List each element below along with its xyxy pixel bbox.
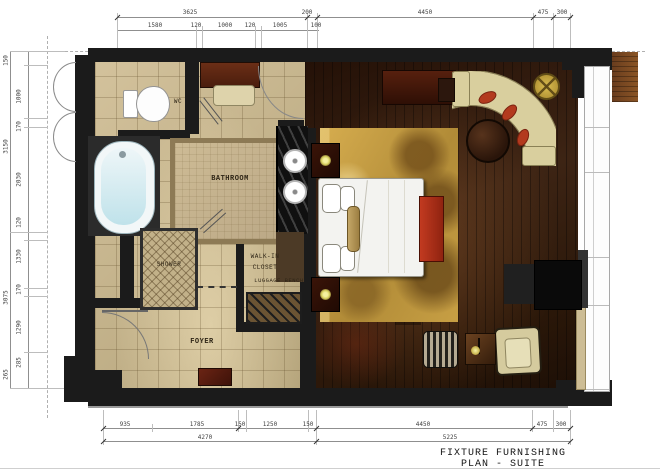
- tick: [24, 118, 48, 119]
- window-mullion-vertical: [593, 67, 594, 391]
- vanity-sink-bottom: [283, 180, 307, 204]
- dim-left-3075: 3075: [3, 283, 10, 313]
- luggage-bench-hatch: [246, 292, 302, 324]
- floor-plan-sheet: 3625 200 4450 475 300 1580 120 1000 120 …: [0, 0, 660, 471]
- foyer-mat: [198, 368, 232, 386]
- dim-left-1000: 1000: [16, 82, 23, 112]
- tick: [152, 424, 153, 432]
- room-label-shower: SHOWER: [143, 261, 195, 268]
- pillow: [322, 184, 341, 213]
- room-label-bathroom: BATHROOM: [175, 175, 285, 183]
- tick: [24, 65, 48, 66]
- toilet-bowl: [136, 86, 170, 122]
- dim-top-475: 475: [533, 9, 553, 16]
- centerline-vertical: [47, 36, 48, 418]
- dimension-line: [28, 51, 29, 388]
- table-lamp: [320, 155, 331, 166]
- bed-end-bench: [419, 196, 444, 262]
- dim-bottom-4450: 4450: [409, 421, 437, 428]
- tick: [24, 127, 48, 128]
- room-label-luggage-bench: LUGGAGE BENCH: [248, 277, 310, 284]
- drum-stool: [423, 331, 458, 368]
- wall-bottom: [88, 388, 568, 406]
- tv-side-shelf: [504, 264, 534, 304]
- corridor-ottoman: [213, 85, 255, 106]
- dimension-line: [10, 51, 11, 388]
- dimension-line: [117, 30, 319, 31]
- dim-bottom-1250: 1250: [258, 421, 282, 428]
- gold-side-table: [533, 73, 560, 100]
- dimension-line: [117, 17, 572, 18]
- duvet-seam: [388, 180, 389, 273]
- window-band: [584, 66, 610, 392]
- wall-shower-left: [120, 228, 134, 308]
- room-label-walkin-line2: CLOSET: [241, 264, 289, 271]
- window-mullion: [585, 127, 609, 128]
- bathtub-basin: [101, 148, 146, 225]
- dim-top-1000: 1000: [212, 22, 238, 29]
- lamp-table: [465, 333, 496, 365]
- tick: [202, 26, 203, 48]
- dim-top-300: 300: [552, 9, 572, 16]
- nightstand-top: [311, 143, 340, 178]
- tick: [24, 240, 48, 241]
- dim-left-285: 285: [16, 348, 23, 378]
- room-label-walkin-line1: WALK-IN: [241, 253, 289, 260]
- shower-stall: SHOWER: [140, 228, 198, 310]
- nightstand-bottom: [311, 277, 340, 312]
- vanity-sink-top: [283, 149, 307, 173]
- louver-door-arc: [53, 112, 76, 137]
- sofa-end-bottom: [522, 146, 556, 166]
- louver-door-arc: [53, 62, 76, 87]
- table-lamp: [320, 289, 331, 300]
- dim-bottom-935: 935: [112, 421, 138, 428]
- pillow: [322, 244, 341, 273]
- lamp-glow: [471, 346, 480, 355]
- vanity-counter: [276, 126, 308, 234]
- tv-cabinet: [534, 260, 582, 310]
- terrace-wood-strip: [612, 52, 638, 102]
- threshold-dashed: [197, 286, 237, 288]
- window-mullion: [585, 172, 609, 173]
- tick: [261, 26, 262, 48]
- window-mullion: [585, 305, 609, 306]
- room-label-foyer: FOYER: [178, 338, 226, 346]
- dim-left-120: 120: [16, 208, 23, 238]
- coffee-table: [466, 119, 510, 163]
- sofa-side-table: [438, 78, 455, 102]
- dim-bottom-300: 300: [553, 421, 569, 428]
- dim-bottom-5225: 5225: [436, 434, 464, 441]
- dim-top-120b: 120: [242, 22, 258, 29]
- window-mullion: [585, 257, 609, 258]
- armchair-seat: [504, 337, 532, 368]
- tick: [196, 26, 197, 48]
- louver-door-arc: [53, 137, 76, 162]
- dim-top-3625: 3625: [170, 9, 210, 16]
- wall-top: [88, 48, 585, 62]
- dim-left-1290: 1290: [16, 313, 23, 343]
- dim-top-4450: 4450: [405, 9, 445, 16]
- dim-top-1580: 1580: [135, 22, 175, 29]
- dim-bottom-1785: 1785: [183, 421, 211, 428]
- dim-top-120a: 120: [188, 22, 204, 29]
- sheet-edge: [0, 468, 660, 469]
- dimension-line: [103, 441, 570, 442]
- tick: [10, 388, 65, 389]
- tick: [24, 288, 48, 289]
- armchair: [494, 326, 542, 376]
- dim-bottom-150a: 150: [232, 421, 248, 428]
- dim-left-2030: 2030: [16, 165, 23, 195]
- dim-bottom-475: 475: [534, 421, 550, 428]
- louver-door-arc: [53, 87, 76, 112]
- wall-bottom-edge: [88, 406, 568, 408]
- dim-bottom-4270: 4270: [191, 434, 219, 441]
- window-sill: [576, 302, 586, 390]
- bed-bolster: [347, 206, 360, 252]
- duvet-seam: [404, 180, 405, 273]
- bathtub-faucet: [119, 151, 126, 158]
- dim-left-170b: 170: [16, 275, 23, 305]
- dim-left-150: 150: [3, 46, 10, 76]
- dim-left-265: 265: [3, 360, 10, 390]
- tick: [24, 352, 48, 353]
- dim-top-200: 200: [297, 9, 317, 16]
- dim-left-3150: 3150: [3, 132, 10, 162]
- tick: [10, 51, 65, 52]
- dim-left-1330: 1330: [16, 242, 23, 272]
- wall-closet-left: [236, 230, 244, 325]
- dim-left-170a: 170: [16, 112, 23, 142]
- dim-top-100: 100: [308, 22, 324, 29]
- tick: [255, 26, 256, 48]
- dim-bottom-150b: 150: [300, 421, 316, 428]
- dimension-line: [103, 428, 570, 429]
- tick: [24, 296, 48, 297]
- window-mullion: [585, 389, 609, 390]
- room-label-wc: WC: [166, 98, 190, 105]
- dim-top-1005: 1005: [266, 22, 294, 29]
- wall-entry-block: [64, 370, 122, 402]
